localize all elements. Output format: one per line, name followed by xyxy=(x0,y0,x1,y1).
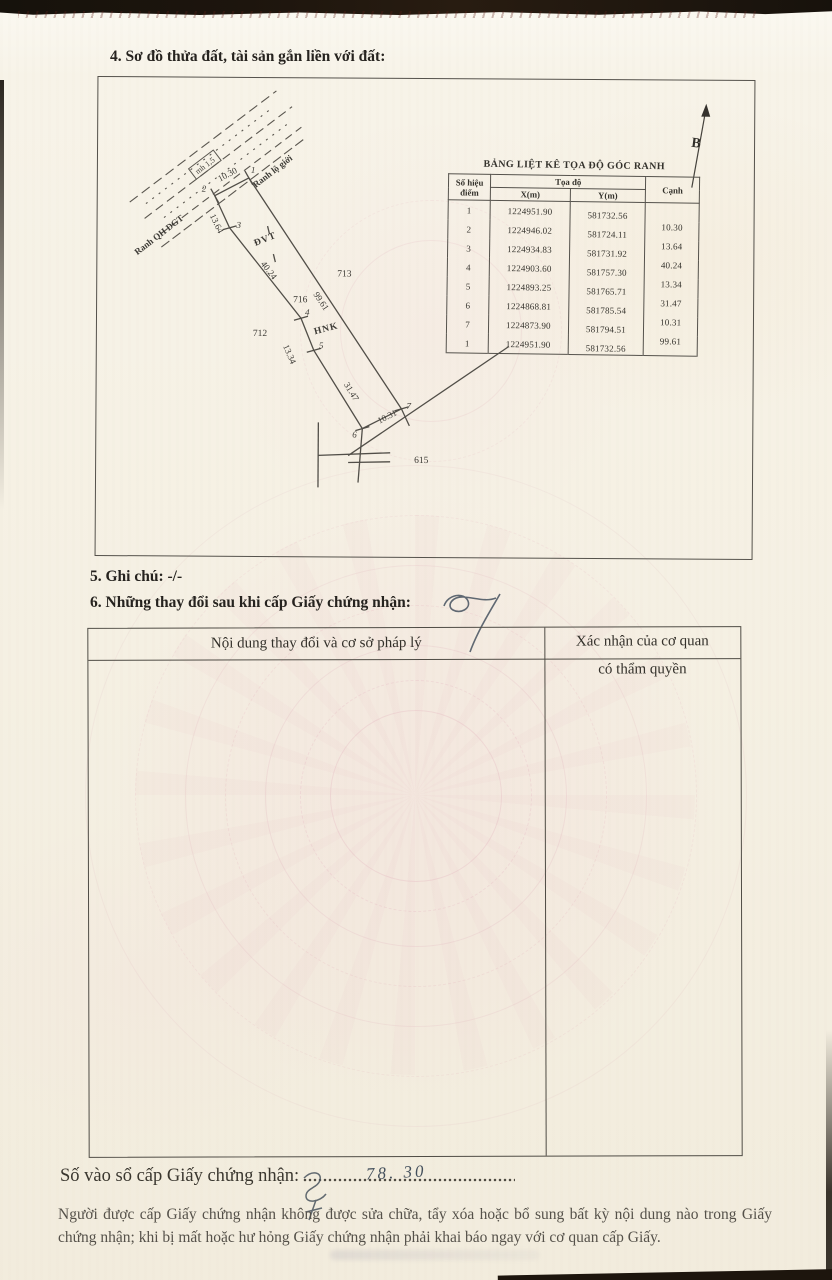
changes-table: Nội dung thay đổi và cơ sở pháp lý Xác n… xyxy=(87,626,742,1158)
edge-2-3: 13.64 xyxy=(208,212,226,235)
header-x: X(m) xyxy=(490,187,570,201)
serial-label: Số vào sổ cấp Giấy chứng nhận: xyxy=(60,1166,299,1186)
adjacent-parcel-712: 712 xyxy=(253,329,268,339)
coordinate-table: BẢNG LIỆT KÊ TỌA ĐỘ GÓC RANH Số hiệu điể… xyxy=(446,158,701,356)
north-label: B xyxy=(691,136,702,152)
point-number: 1 xyxy=(467,205,472,215)
coordinate-table-header: Số hiệu điểm Tọa độ Cạnh X(m) Y(m) xyxy=(448,174,699,204)
point-4: 4 xyxy=(305,307,310,317)
coord-x: 1224951.90 xyxy=(506,339,551,350)
coord-x: 1224951.90 xyxy=(508,206,553,217)
edge-7-1: 99.61 xyxy=(311,290,331,312)
edge-length: 31.47 xyxy=(660,298,681,308)
coord-x: 1224868.81 xyxy=(506,301,551,312)
serial-handwritten-value: 78. 30 xyxy=(366,1161,427,1184)
point-number: 7 xyxy=(465,319,470,329)
coord-x: 1224873.90 xyxy=(506,320,551,331)
adjacent-parcel-713: 713 xyxy=(337,269,352,279)
coord-y: 581794.51 xyxy=(586,324,626,335)
coord-y: 581757.30 xyxy=(587,267,627,278)
point-3: 3 xyxy=(236,220,242,230)
header-canh: Cạnh xyxy=(646,177,700,204)
point-number: 1 xyxy=(465,338,470,348)
coordinate-table-body: 1 1224951.90 581732.56 2 1224946.02 5817… xyxy=(446,200,699,356)
certificate-scan-page: 4. Sơ đồ thửa đất, tài sản gắn liền với … xyxy=(0,0,832,1280)
edge-length: 13.34 xyxy=(661,279,682,289)
changes-table-divider xyxy=(544,628,547,1156)
header-y: Y(m) xyxy=(570,188,646,202)
edge-6-7: 10.31 xyxy=(376,407,399,425)
coord-y: 581732.56 xyxy=(586,343,626,354)
coordinate-row: 1 1224951.90 581732.56 99.61 xyxy=(446,333,697,356)
point-number: 2 xyxy=(467,224,472,234)
changes-col2-header-line2: có thẩm quyền xyxy=(544,661,740,679)
edge-length: 10.31 xyxy=(660,317,681,327)
coord-y: 581731.92 xyxy=(587,248,627,259)
label-ranh-lo-gioi: Ranh lộ giới xyxy=(251,153,295,190)
point-2: 2 xyxy=(202,184,207,194)
changes-col2-header-line1: Xác nhận của cơ quan xyxy=(544,633,740,651)
edge-length: 10.30 xyxy=(661,222,682,232)
header-so-hieu: Số hiệu xyxy=(456,177,484,187)
section6-title: 6. Những thay đổi sau khi cấp Giấy chứng… xyxy=(90,594,411,612)
coord-y: 581765.71 xyxy=(586,286,626,297)
coord-y: 581724.11 xyxy=(587,229,627,240)
parcel-number-716: 716 xyxy=(293,295,308,305)
coord-y: 581785.54 xyxy=(586,305,626,316)
point-number: 4 xyxy=(466,262,471,272)
point-number: 3 xyxy=(466,243,471,253)
coord-x: 1224903.60 xyxy=(507,263,552,274)
coord-y: 581732.56 xyxy=(587,210,627,221)
edge-1-2: 10.30 xyxy=(216,165,239,183)
point-1: 1 xyxy=(251,165,256,175)
serial-line: Số vào sổ cấp Giấy chứng nhận: xyxy=(60,1166,515,1187)
landuse-hnk: HNK xyxy=(313,321,339,337)
edge-3-4: 40.24 xyxy=(259,259,280,282)
point-5: 5 xyxy=(319,340,324,350)
coord-x: 1224934.83 xyxy=(507,244,552,255)
header-diem: điểm xyxy=(460,187,479,197)
bleed-through-artifact xyxy=(330,1250,540,1260)
edge-length: 99.61 xyxy=(660,336,681,346)
edge-length: 13.64 xyxy=(661,241,682,251)
adjacent-parcel-615: 615 xyxy=(414,456,429,466)
section4-title: 4. Sơ đồ thửa đất, tài sản gắn liền với … xyxy=(110,48,385,66)
scan-edge-bottom xyxy=(498,1269,832,1280)
section5-note: 5. Ghi chú: -/- xyxy=(90,568,182,586)
coord-x: 1224946.02 xyxy=(507,225,552,236)
scan-edge-left xyxy=(0,80,4,510)
point-number: 6 xyxy=(465,300,470,310)
footer-warning-note: Người được cấp Giấy chứng nhận không đượ… xyxy=(58,1203,772,1250)
coord-x: 1224893.25 xyxy=(507,282,552,293)
scan-edge-top-frill xyxy=(18,11,758,18)
changes-col1-header: Nội dung thay đổi và cơ sở pháp lý xyxy=(88,635,544,653)
edge-length: 40.24 xyxy=(661,260,682,270)
coordinate-table-title: BẢNG LIỆT KÊ TỌA ĐỘ GÓC RANH xyxy=(448,158,700,173)
landuse-dvt: ĐVT xyxy=(253,231,278,249)
scan-edge-right xyxy=(826,1030,832,1280)
point-6: 6 xyxy=(352,430,357,440)
point-number: 5 xyxy=(466,281,471,291)
edge-4-5: 13.34 xyxy=(281,343,298,366)
point-7: 7 xyxy=(406,401,411,411)
